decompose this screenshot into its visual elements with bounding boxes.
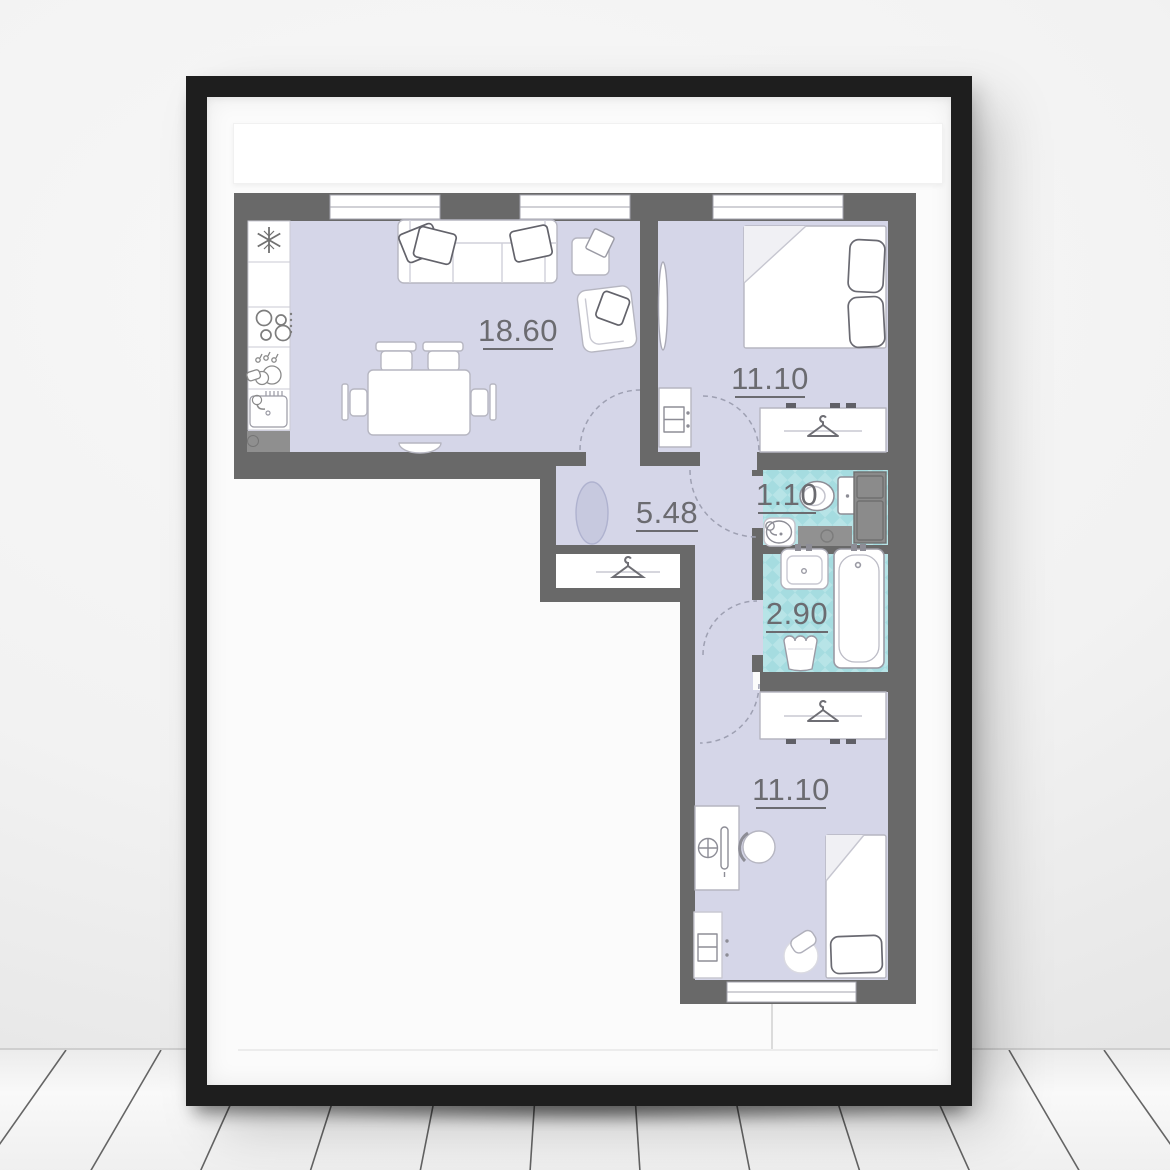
pillow bbox=[848, 296, 886, 348]
pillow bbox=[848, 239, 886, 293]
wardrobe bbox=[760, 403, 886, 452]
area-label-hallway: 5.48 bbox=[636, 495, 698, 530]
mirror bbox=[659, 262, 668, 350]
washbasin-icon bbox=[781, 544, 828, 589]
pillow bbox=[830, 935, 882, 974]
poster-frame: 18.60 11.10 5.48 1.10 2.90 11.10 bbox=[186, 76, 972, 1106]
sofa bbox=[398, 220, 557, 283]
sink-icon bbox=[250, 391, 287, 427]
bathtub-icon bbox=[834, 544, 884, 668]
armchair bbox=[576, 285, 637, 353]
area-label-bedroom-top: 11.10 bbox=[731, 361, 809, 396]
floor-plan: 18.60 11.10 5.48 1.10 2.90 11.10 bbox=[207, 97, 951, 1085]
hall-passage bbox=[695, 543, 753, 693]
hall-rug bbox=[576, 482, 608, 544]
poster-mat: 18.60 11.10 5.48 1.10 2.90 11.10 bbox=[207, 97, 951, 1085]
washbasin-icon bbox=[764, 518, 795, 546]
utility-cabinet bbox=[854, 472, 886, 543]
laundry-basket-icon bbox=[784, 636, 817, 671]
wc-counter bbox=[798, 526, 852, 546]
area-label-bathroom: 2.90 bbox=[766, 596, 828, 631]
photo-scene: 18.60 11.10 5.48 1.10 2.90 11.10 bbox=[0, 0, 1170, 1170]
wardrobe bbox=[760, 692, 886, 744]
area-label-wc: 1.10 bbox=[756, 477, 818, 512]
dresser bbox=[659, 388, 691, 447]
dining-table bbox=[368, 370, 470, 435]
area-label-bedroom-bottom: 11.10 bbox=[752, 772, 830, 807]
pillow bbox=[509, 224, 553, 262]
desk bbox=[695, 806, 739, 890]
single-bed bbox=[826, 835, 886, 978]
wardrobe-niche bbox=[556, 554, 680, 588]
double-bed bbox=[744, 226, 886, 348]
wall-pier bbox=[247, 431, 290, 452]
area-label-living: 18.60 bbox=[478, 313, 558, 348]
